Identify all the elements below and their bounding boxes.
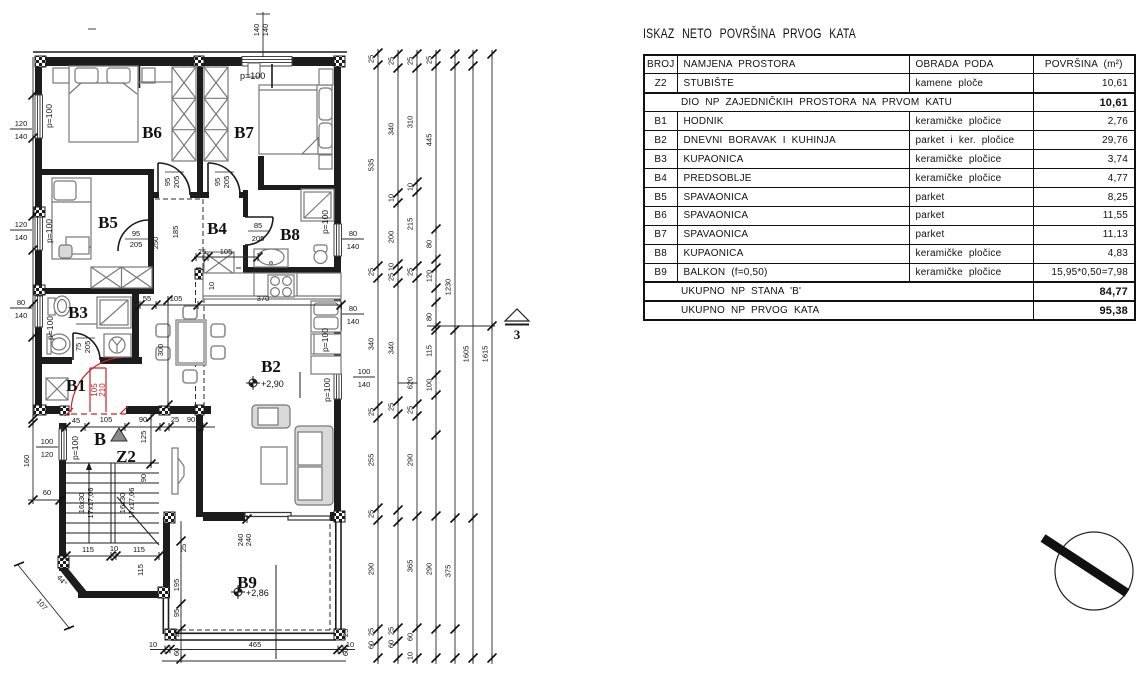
svg-text:25: 25 (406, 406, 415, 414)
svg-text:120: 120 (15, 119, 28, 128)
svg-text:25: 25 (198, 247, 206, 256)
svg-text:80: 80 (17, 298, 25, 307)
svg-text:140: 140 (358, 380, 371, 389)
svg-text:25: 25 (367, 408, 376, 416)
svg-text:25: 25 (367, 55, 376, 63)
svg-text:60: 60 (406, 633, 415, 641)
svg-text:95: 95 (172, 609, 181, 617)
svg-text:25: 25 (425, 56, 434, 64)
svg-text:p=100: p=100 (70, 436, 80, 460)
svg-text:25: 25 (387, 627, 396, 635)
svg-text:1605: 1605 (462, 346, 471, 363)
svg-text:100: 100 (41, 437, 54, 446)
svg-text:115: 115 (136, 564, 145, 576)
svg-text:10: 10 (387, 263, 396, 271)
svg-text:B8: B8 (280, 225, 300, 244)
svg-text:250: 250 (151, 237, 160, 250)
svg-text:25: 25 (367, 268, 376, 276)
svg-text:107: 107 (34, 597, 49, 612)
svg-text:25: 25 (341, 629, 350, 637)
svg-text:17x17,06: 17x17,06 (86, 488, 95, 519)
svg-text:Z2: Z2 (116, 447, 136, 466)
svg-text:60: 60 (367, 641, 376, 649)
svg-text:120: 120 (15, 220, 28, 229)
svg-text:45: 45 (72, 416, 80, 425)
svg-text:10: 10 (207, 282, 216, 290)
svg-text:210: 210 (98, 383, 107, 397)
svg-text:16x30: 16x30 (118, 493, 127, 513)
svg-text:80: 80 (425, 240, 434, 248)
svg-text:85: 85 (254, 221, 262, 230)
svg-text:B2: B2 (261, 357, 281, 376)
svg-text:340: 340 (387, 342, 396, 355)
svg-text:25: 25 (367, 628, 376, 636)
svg-text:140: 140 (252, 24, 261, 37)
svg-text:10: 10 (346, 640, 354, 649)
svg-text:10: 10 (149, 640, 157, 649)
svg-text:B6: B6 (142, 123, 162, 142)
svg-text:370: 370 (257, 294, 270, 303)
svg-text:95: 95 (163, 178, 172, 186)
svg-text:205: 205 (83, 341, 92, 354)
svg-text:140: 140 (261, 24, 270, 37)
svg-text:120: 120 (425, 270, 434, 283)
svg-text:10: 10 (406, 183, 415, 191)
svg-text:3: 3 (514, 327, 521, 342)
svg-text:B7: B7 (234, 123, 254, 142)
svg-text:B: B (94, 429, 106, 449)
svg-text:105: 105 (220, 247, 233, 256)
svg-text:140: 140 (15, 311, 28, 320)
svg-text:185: 185 (171, 226, 180, 239)
svg-text:95: 95 (213, 178, 222, 186)
svg-text:25: 25 (171, 415, 179, 424)
svg-text:25: 25 (367, 510, 376, 518)
svg-text:205: 205 (222, 176, 231, 189)
svg-text:25: 25 (387, 273, 396, 281)
svg-text:80: 80 (349, 304, 357, 313)
svg-text:255: 255 (367, 454, 376, 467)
svg-text:10: 10 (110, 544, 118, 553)
svg-text:340: 340 (367, 338, 376, 351)
svg-text:445: 445 (425, 134, 434, 147)
svg-text:115: 115 (82, 545, 94, 554)
svg-text:115: 115 (133, 545, 145, 554)
svg-text:205: 205 (172, 176, 181, 189)
svg-text:p=100: p=100 (44, 219, 54, 243)
svg-text:p=100: p=100 (44, 104, 54, 128)
svg-text:105: 105 (100, 415, 113, 424)
svg-text:90: 90 (139, 415, 147, 424)
svg-text:p=100: p=100 (322, 378, 332, 402)
svg-text:290: 290 (367, 563, 376, 576)
svg-text:55: 55 (143, 294, 151, 303)
svg-text:25: 25 (406, 57, 415, 65)
svg-text:p=100: p=100 (45, 316, 55, 340)
svg-text:195: 195 (172, 579, 181, 592)
svg-text:p=100: p=100 (320, 210, 330, 234)
svg-text:60: 60 (43, 488, 51, 497)
svg-text:p=100: p=100 (320, 328, 330, 352)
svg-text:25: 25 (406, 268, 415, 276)
svg-text:140: 140 (15, 132, 28, 141)
svg-text:10: 10 (387, 194, 396, 202)
svg-text:+2,90: +2,90 (261, 379, 284, 389)
svg-text:290: 290 (406, 454, 415, 467)
svg-text:365: 365 (406, 560, 415, 573)
svg-text:100: 100 (358, 367, 371, 376)
svg-text:200: 200 (387, 231, 396, 244)
svg-text:215: 215 (406, 218, 415, 231)
svg-text:B3: B3 (68, 303, 88, 322)
svg-text:125: 125 (139, 431, 148, 444)
svg-text:B1: B1 (66, 376, 86, 395)
svg-text:p=100: p=100 (240, 71, 265, 81)
svg-text:160: 160 (22, 455, 31, 468)
svg-text:1230: 1230 (444, 279, 453, 296)
svg-text:90: 90 (139, 474, 148, 482)
svg-text:120: 120 (41, 450, 54, 459)
svg-text:340: 340 (387, 123, 396, 136)
svg-text:75: 75 (74, 343, 83, 351)
svg-text:140: 140 (347, 317, 360, 326)
svg-text:+2,86: +2,86 (246, 588, 269, 598)
svg-text:140: 140 (15, 233, 28, 242)
svg-text:100: 100 (425, 379, 434, 392)
svg-text:290: 290 (425, 563, 434, 576)
svg-text:80: 80 (425, 313, 434, 321)
svg-text:375: 375 (444, 565, 453, 578)
svg-text:300: 300 (156, 344, 165, 357)
svg-text:310: 310 (406, 116, 415, 129)
svg-text:25: 25 (387, 57, 396, 65)
svg-text:535: 535 (367, 159, 376, 172)
svg-text:240: 240 (244, 534, 253, 547)
svg-text:1615: 1615 (481, 346, 490, 363)
svg-text:105: 105 (170, 294, 183, 303)
svg-text:205: 205 (252, 234, 265, 243)
svg-text:140: 140 (347, 242, 360, 251)
svg-text:17x17,06: 17x17,06 (127, 488, 136, 519)
svg-text:25: 25 (179, 544, 188, 552)
svg-text:60: 60 (341, 648, 350, 656)
svg-text:25: 25 (387, 403, 396, 411)
svg-text:B5: B5 (98, 213, 118, 232)
svg-text:16x30: 16x30 (77, 493, 86, 513)
svg-text:80: 80 (349, 229, 357, 238)
svg-text:10: 10 (406, 652, 415, 660)
svg-text:465: 465 (249, 640, 262, 649)
svg-text:25: 25 (172, 629, 181, 637)
svg-text:B4: B4 (207, 219, 227, 238)
svg-text:90: 90 (187, 415, 195, 424)
svg-text:115: 115 (425, 345, 434, 357)
svg-text:95: 95 (132, 229, 140, 238)
svg-text:205: 205 (130, 240, 143, 249)
svg-text:60: 60 (387, 640, 396, 648)
